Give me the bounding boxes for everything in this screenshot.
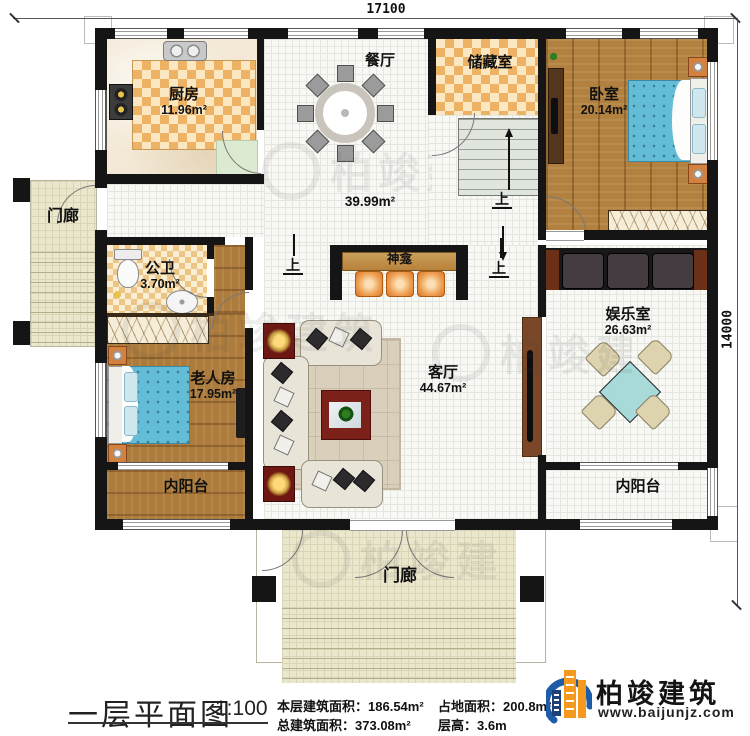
wall — [455, 519, 580, 530]
floor-plan-canvas: 17100 14000 — [0, 0, 750, 736]
info-label: 总建筑面积： — [277, 718, 355, 733]
nightstand — [688, 164, 708, 184]
room-area: 20.14m² — [552, 103, 656, 117]
info-floor-area: 本层建筑面积：186.54m² — [277, 696, 424, 715]
nightstand — [688, 57, 708, 77]
dimension-line-top — [13, 18, 737, 19]
step-mark-line — [293, 234, 295, 256]
window — [95, 90, 107, 150]
room-name: 门廊 — [34, 208, 92, 226]
shrine-wall — [330, 245, 342, 300]
wall — [95, 174, 264, 184]
window — [378, 28, 424, 39]
room-name: 内阳台 — [134, 478, 238, 495]
door-threshold — [350, 520, 455, 531]
watermark-text: 柏竣建筑 — [330, 140, 432, 201]
info-value: 373.08m² — [355, 718, 411, 733]
shrine-wall — [456, 245, 468, 300]
lamp-side-table — [263, 466, 295, 502]
wall — [207, 245, 214, 259]
storage-floor — [436, 39, 538, 119]
info-value: 200.8m² — [503, 699, 551, 714]
floor-drain — [114, 291, 121, 298]
window — [580, 519, 672, 530]
step-up-label-left: 上 — [283, 258, 303, 275]
window — [184, 28, 248, 39]
wall — [95, 230, 107, 237]
wall — [672, 519, 718, 530]
porch-column — [13, 321, 30, 345]
porch-column — [520, 576, 544, 602]
room-area: 17.95m² — [161, 387, 265, 401]
room-name: 厨房 — [134, 86, 234, 103]
kitchen-label: 厨房 11.96m² — [134, 86, 234, 118]
corridor-floor — [107, 184, 264, 237]
room-area: 26.63m² — [576, 323, 680, 337]
bed-pillow — [124, 406, 138, 436]
wall — [245, 470, 253, 519]
living-label: 客厅 44.67m² — [391, 364, 495, 396]
wall — [95, 519, 123, 530]
shrine-stool — [417, 271, 445, 297]
storage-label: 储藏室 — [438, 54, 542, 71]
dimension-line-right — [737, 18, 738, 605]
shrine-wall — [330, 245, 468, 252]
window — [115, 28, 167, 39]
sofa-pillow — [273, 434, 294, 455]
window — [123, 519, 230, 530]
ent-sofa-cushion — [652, 253, 694, 289]
kitchen-sink — [163, 41, 207, 61]
watermark-ring-icon — [122, 302, 180, 360]
step-mark-line — [500, 238, 502, 258]
ent-sofa-armrest — [546, 250, 559, 290]
window — [118, 462, 228, 470]
table-plant — [336, 404, 356, 424]
room-name: 娱乐室 — [576, 306, 680, 323]
room-name: 卧室 — [552, 86, 656, 103]
ent-sofa-cushion — [562, 253, 604, 289]
wall — [95, 237, 225, 245]
window — [707, 468, 718, 516]
sofa-pillow — [333, 468, 356, 491]
wall — [538, 245, 546, 317]
shrine-stool — [386, 271, 414, 297]
sofa-pillow — [271, 410, 294, 433]
sofa-pillow — [353, 470, 376, 493]
room-area: 44.67m² — [391, 381, 495, 395]
shrine-stool — [355, 271, 383, 297]
info-land-area: 占地面积：200.8m² — [438, 696, 551, 715]
wall — [95, 462, 118, 470]
window — [580, 462, 678, 470]
balcony-left-label: 内阳台 — [134, 478, 238, 495]
ent-sofa-armrest — [694, 250, 707, 290]
shrine-label: 神龛 — [357, 252, 442, 266]
watermark: 柏竣建筑 — [262, 140, 432, 201]
dimension-right-value: 14000 — [721, 299, 736, 361]
window — [288, 28, 358, 39]
watermark-ring-icon — [262, 142, 320, 200]
window — [566, 28, 622, 39]
wall — [678, 462, 707, 470]
info-label: 层高： — [438, 718, 477, 733]
door-threshold — [546, 231, 584, 241]
sofa-left — [263, 356, 309, 470]
wall — [546, 462, 580, 470]
sofa-pillow — [273, 386, 294, 407]
wall-thin — [107, 313, 214, 316]
porch-column — [13, 178, 30, 202]
dimension-top-value: 17100 — [355, 2, 417, 17]
bed-pillow — [692, 124, 706, 154]
room-area: 11.96m² — [134, 103, 234, 117]
elder-room-label: 老人房 17.95m² — [161, 370, 265, 402]
info-value: 3.6m — [477, 718, 507, 733]
title-underline — [68, 722, 268, 724]
wall — [257, 39, 264, 130]
wall — [538, 455, 546, 519]
dining-area-label: 39.99m² — [318, 194, 422, 210]
wall — [584, 230, 707, 240]
plan-scale: 1:100 — [215, 697, 268, 721]
room-name: 神龛 — [357, 252, 442, 266]
sofa-pillow — [311, 470, 332, 491]
room-name: 餐厅 — [330, 52, 430, 69]
stair-up-arrow — [505, 128, 513, 137]
plan-title: 一层平面图 — [68, 690, 233, 734]
sofa-bottom — [301, 460, 383, 508]
info-floor-height: 层高：3.6m — [438, 715, 507, 734]
dining-table-center — [341, 109, 349, 117]
watermark-text: 柏竣建筑 — [190, 300, 372, 361]
dining-chair — [377, 105, 394, 122]
wall — [245, 237, 253, 290]
bed-sheet-fold — [672, 80, 690, 160]
room-name: 门廊 — [352, 566, 448, 586]
wall — [428, 39, 436, 115]
bedroom-label: 卧室 20.14m² — [552, 86, 656, 118]
room-area: 3.70m² — [108, 277, 212, 291]
watermark-ring-icon — [292, 530, 350, 588]
room-name: 内阳台 — [586, 478, 690, 495]
logo-icon — [546, 662, 592, 734]
dining-chair — [297, 105, 314, 122]
room-name: 老人房 — [161, 370, 265, 387]
ent-sofa-cushion — [607, 253, 649, 289]
room-name: 客厅 — [391, 364, 495, 381]
window — [707, 62, 718, 160]
window — [95, 363, 107, 437]
room-area: 39.99m² — [318, 194, 422, 210]
info-label: 本层建筑面积： — [277, 699, 368, 714]
room-name: 公卫 — [108, 260, 212, 277]
sofa-pillow — [271, 362, 294, 385]
porch-left-label: 门廊 — [34, 208, 92, 226]
room-name: 储藏室 — [438, 54, 542, 71]
bed-pillow — [692, 88, 706, 118]
nightstand — [108, 444, 127, 463]
wall — [228, 462, 253, 470]
stair-entry-line — [502, 226, 504, 252]
porch-column — [252, 576, 276, 602]
dining-label: 餐厅 — [330, 52, 430, 69]
bed-pillow — [124, 372, 138, 402]
info-value: 186.54m² — [368, 699, 424, 714]
wall — [95, 184, 107, 188]
wall — [230, 519, 350, 530]
bathroom-label: 公卫 3.70m² — [108, 260, 212, 292]
entertainment-label: 娱乐室 26.63m² — [576, 306, 680, 338]
desk-plant — [549, 52, 558, 61]
stair-direction-line — [508, 136, 510, 190]
step-up-label-right: 上 — [489, 261, 509, 278]
porch-left-steps — [30, 252, 95, 345]
window — [640, 28, 698, 39]
stairs-up-label: 上 — [492, 192, 512, 209]
kitchen-stove — [109, 84, 133, 120]
balcony-right-label: 内阳台 — [586, 478, 690, 495]
logo-website: www.baijunjz.com — [598, 704, 735, 720]
info-total-area: 总建筑面积：373.08m² — [277, 715, 411, 734]
porch-bottom-steps — [282, 608, 516, 683]
logo-building-icon — [546, 662, 592, 734]
info-label: 占地面积： — [438, 699, 503, 714]
porch-bottom-label: 门廊 — [352, 566, 448, 586]
bedroom-wardrobe — [608, 210, 708, 232]
